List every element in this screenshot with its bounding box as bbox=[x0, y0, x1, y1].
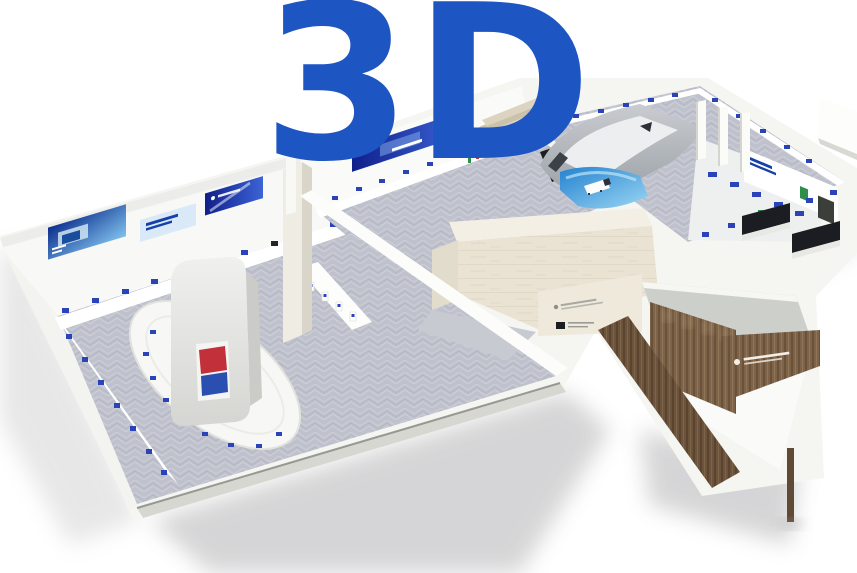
reception-sign-text2 bbox=[568, 326, 588, 327]
media-totem[interactable] bbox=[171, 257, 250, 426]
wall-light-1 bbox=[664, 312, 672, 320]
exhibition-3d-overview: 3D bbox=[0, 0, 857, 573]
logo-3d: 3D bbox=[262, 0, 594, 209]
wall-light-2 bbox=[684, 318, 692, 326]
reception-sign-text1 bbox=[568, 322, 594, 324]
totem-screen-red bbox=[199, 346, 227, 374]
entrance-support-leg bbox=[787, 448, 794, 522]
venue-map-canvas: 3D bbox=[0, 0, 857, 573]
logo-3d-text: 3D bbox=[262, 0, 594, 209]
totem-screen-blue bbox=[201, 372, 228, 396]
leg-shadow bbox=[779, 520, 803, 528]
reception-sign bbox=[556, 322, 565, 329]
exhibit-model-dark[interactable] bbox=[271, 241, 278, 246]
wall-light-3 bbox=[704, 324, 712, 332]
